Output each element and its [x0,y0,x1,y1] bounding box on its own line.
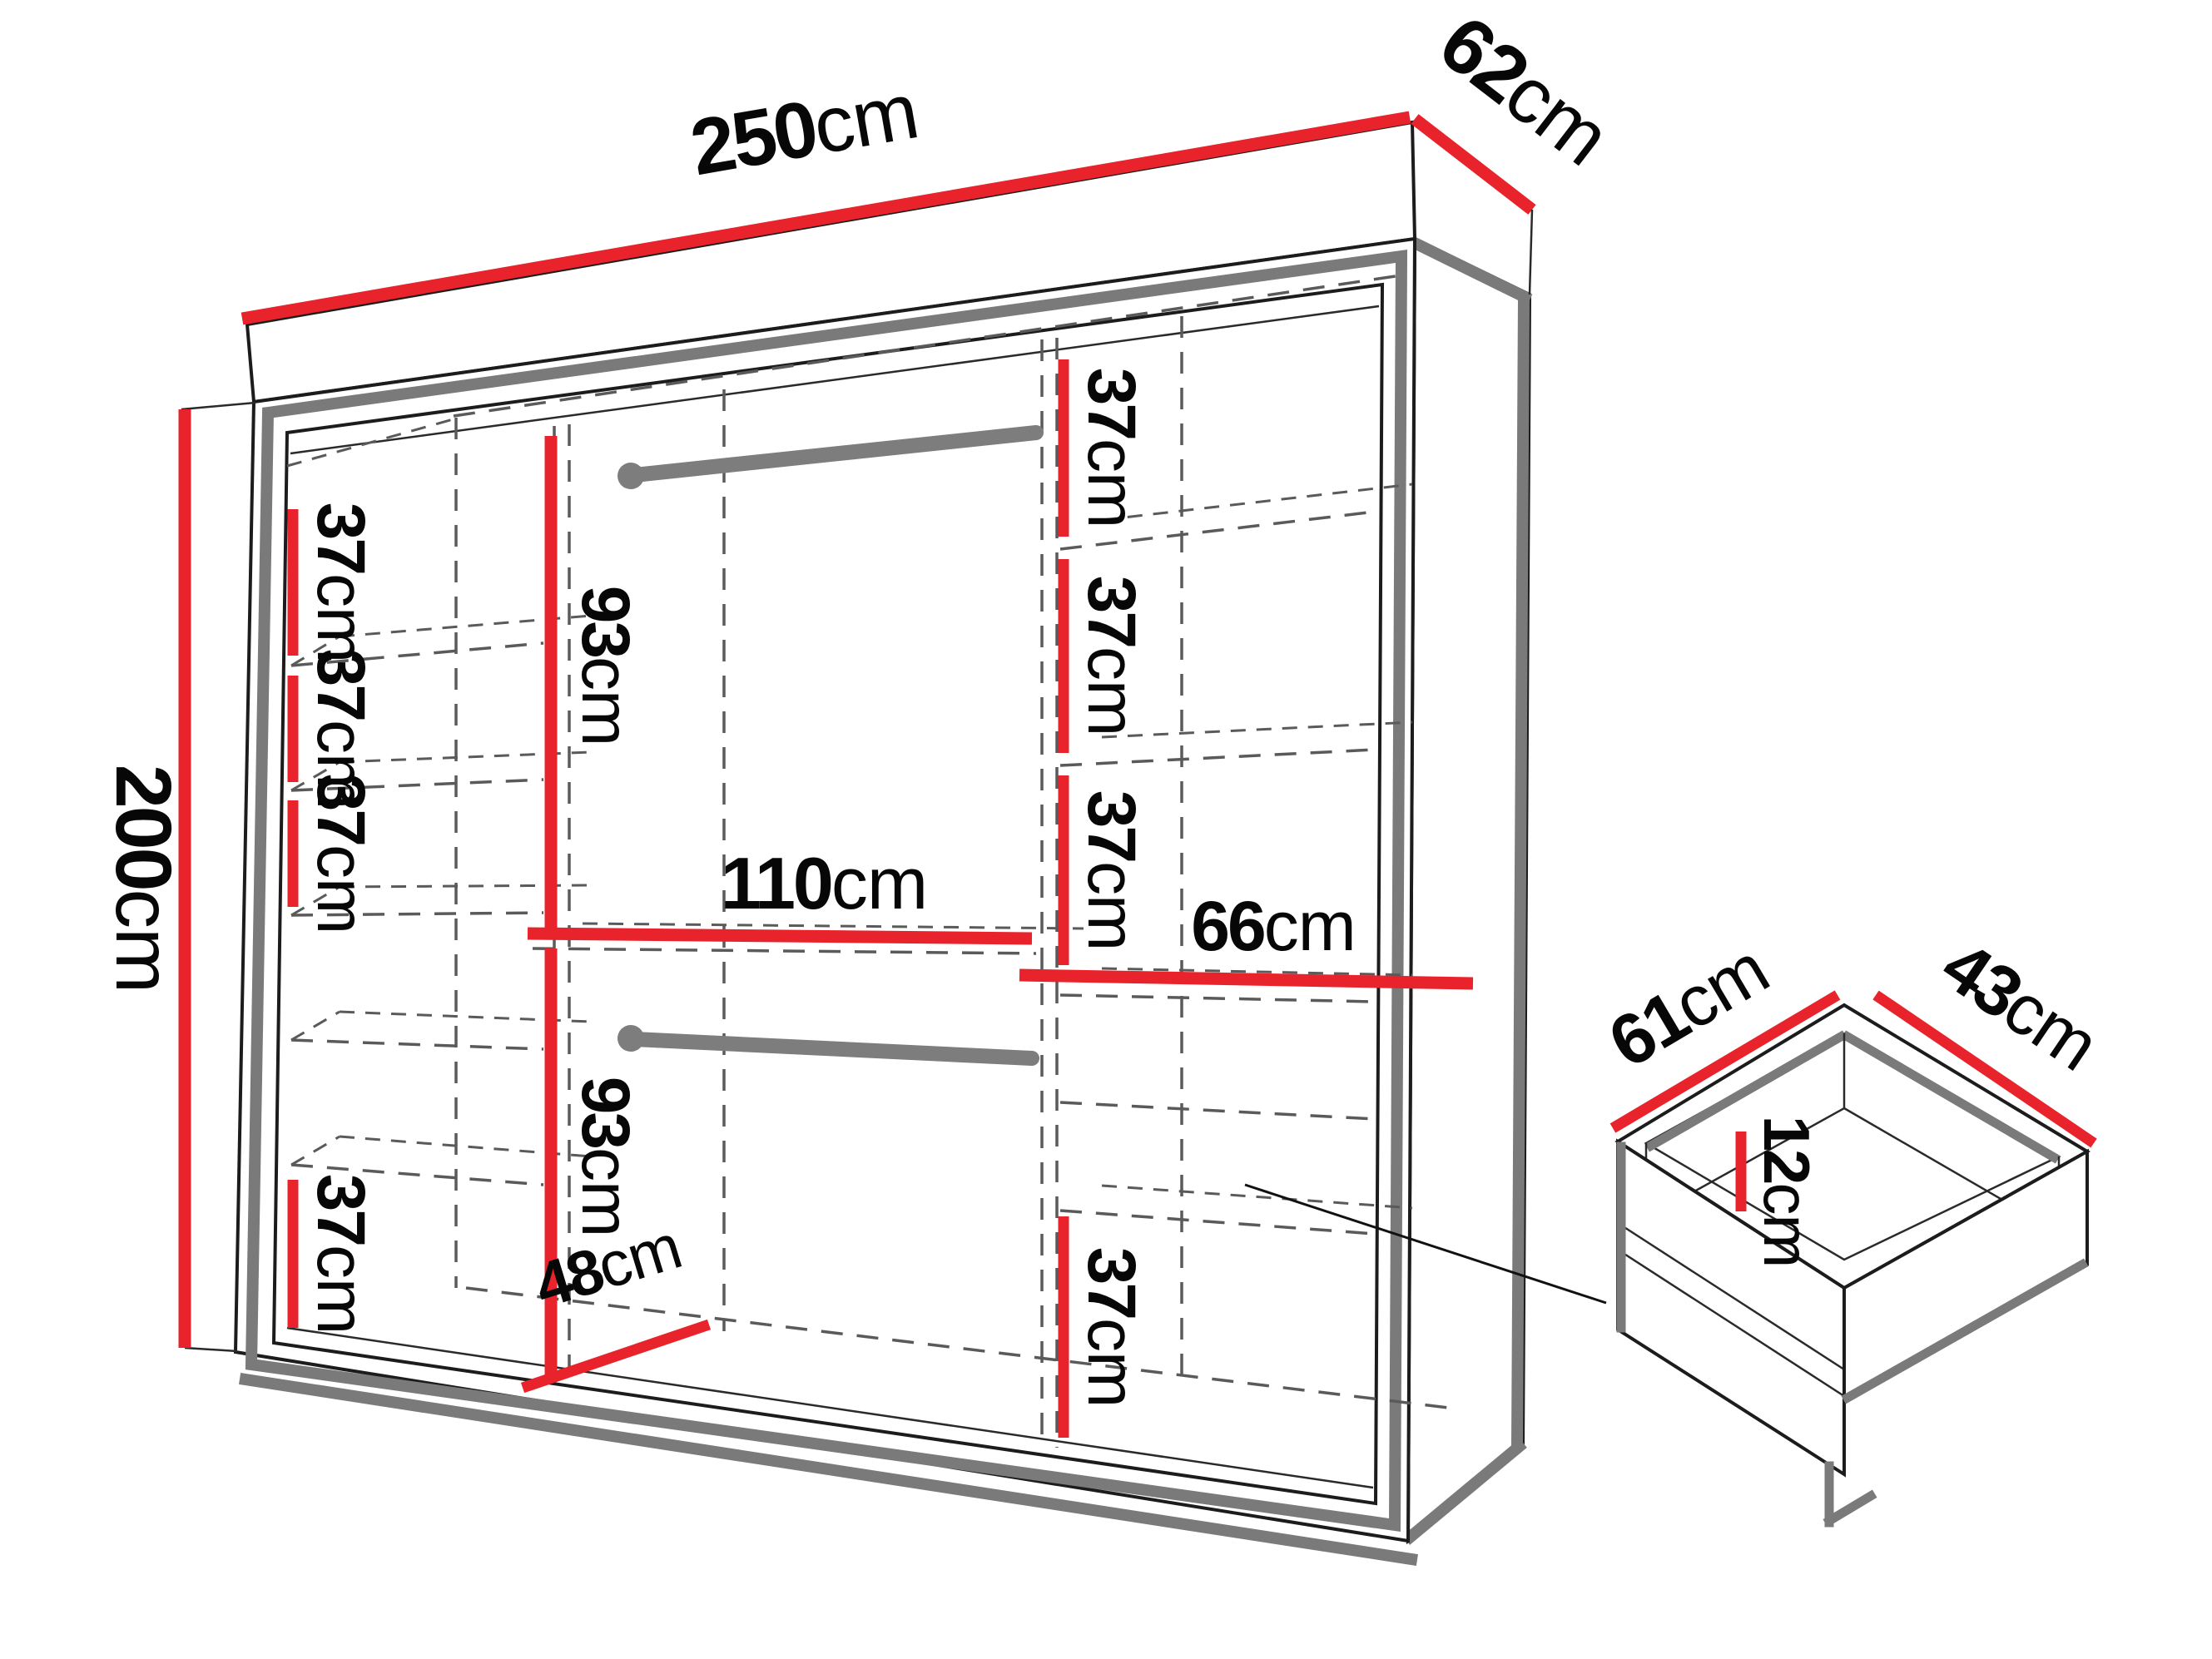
dimension-depth: 62cm [1415,0,1625,295]
drawer-height-label: 12cm [1750,1116,1823,1268]
drawer-detail: 61cm 43cm 12cm [1596,925,2112,1523]
shelf-dimension-label: 37cm [303,774,379,934]
height-extension-top [181,403,255,409]
upper-section-label: 93cm [568,586,643,746]
width-dimension-label: 250cm [684,67,924,192]
diagram-canvas: 250cm 62cm 200cm 37cm 37cm 37cm 37cm 93c… [0,0,2212,1659]
shelf-dimension-label: 37cm [303,1174,379,1335]
shelf-width-label: 66cm [1191,887,1355,965]
wardrobe-body [236,122,1530,1559]
height-extension-bottom [185,1348,237,1351]
wardrobe-dimension-diagram: 250cm 62cm 200cm 37cm 37cm 37cm 37cm 93c… [0,0,2212,1659]
drawer-depth-label: 43cm [1928,925,2112,1086]
section-width-label: 110cm [721,842,927,924]
shelf-dimension-label: 37cm [1074,576,1149,736]
shelf-dimension-label: 37cm [303,503,379,663]
section-width-dimension-line [528,933,1032,938]
left-shelf-dimensions: 37cm 37cm 37cm 37cm [293,503,379,1335]
height-dimension-label: 200cm [99,765,187,993]
shelf-dimension-label: 37cm [1074,790,1149,951]
shelf-width-dimension-line [1019,975,1473,983]
drawer-foot-edge [1829,1496,1871,1521]
depth-extension-line [1530,210,1532,295]
side-back-edge [1517,300,1524,1444]
dimension-height: 200cm [99,403,255,1351]
shelf-dimension-label: 37cm [1074,1247,1149,1408]
shelf-dimension-label: 37cm [1074,368,1149,528]
lower-section-label: 93cm [568,1077,643,1237]
wardrobe-side-panel [1408,239,1530,1541]
